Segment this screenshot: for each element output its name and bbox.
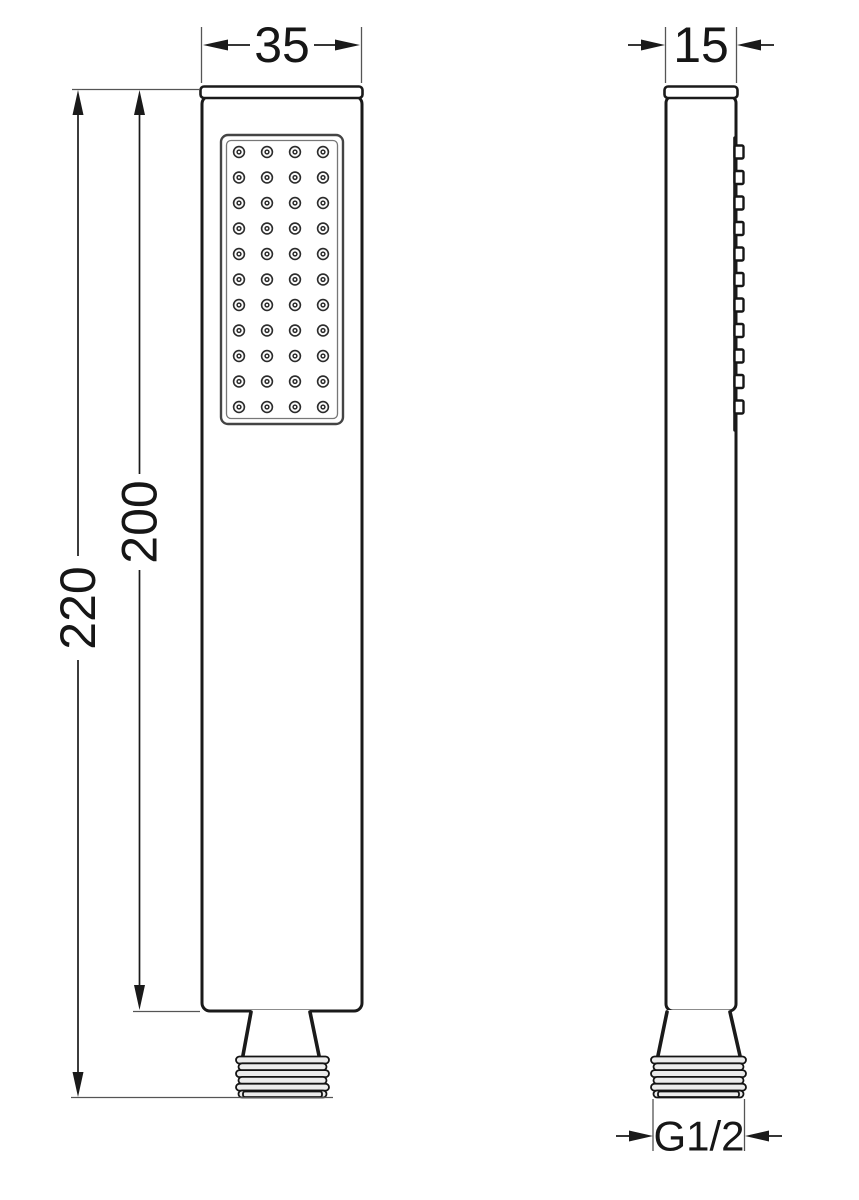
dim-body-height: 200	[112, 90, 168, 1010]
nozzle-hole-center	[321, 303, 325, 307]
nozzle-hole-center	[321, 252, 325, 256]
nozzle-hole-center	[293, 150, 297, 154]
nozzle-hole-center	[293, 278, 297, 282]
front-view	[201, 87, 363, 1098]
dim-label-side-width: 15	[673, 17, 729, 73]
dim-thread: G1/2	[616, 1099, 782, 1160]
side-neck-fill	[657, 1010, 741, 1058]
nozzle-hole-center	[321, 405, 325, 409]
nozzle-bump	[735, 273, 744, 286]
nozzle-hole-center	[293, 303, 297, 307]
side-threads	[651, 1057, 746, 1098]
side-body	[666, 96, 736, 1011]
nozzle-hole-center	[237, 380, 241, 384]
nozzle-hole-center	[265, 278, 269, 282]
nozzle-bump	[735, 324, 744, 337]
nozzle-hole-center	[293, 252, 297, 256]
nozzle-hole-center	[293, 329, 297, 333]
thread-base	[243, 1092, 322, 1098]
dim-side-width: 15	[628, 17, 774, 83]
arrowhead-top	[73, 90, 84, 115]
nozzle-bump	[735, 401, 744, 414]
handshower-dimension-diagram: 35 15 220 200 G1/2	[0, 0, 859, 1200]
nozzle-hole-center	[293, 380, 297, 384]
nozzle-hole-center	[265, 176, 269, 180]
front-neck-fill	[242, 1010, 320, 1058]
nozzle-hole-center	[265, 380, 269, 384]
nozzle-hole-center	[237, 227, 241, 231]
dim-label-thread: G1/2	[653, 1113, 744, 1160]
nozzle-hole-center	[293, 227, 297, 231]
nozzle-hole-center	[237, 329, 241, 333]
front-threads	[236, 1057, 329, 1098]
technical-drawing-canvas: 35 15 220 200 G1/2	[0, 0, 859, 1200]
nozzle-hole-center	[321, 227, 325, 231]
nozzle-hole-center	[321, 201, 325, 205]
nozzle-hole-center	[265, 303, 269, 307]
nozzle-bump	[735, 375, 744, 388]
nozzle-hole-center	[321, 354, 325, 358]
arrowhead-left	[203, 40, 228, 51]
nozzle-bump	[735, 248, 744, 261]
nozzle-hole-center	[237, 176, 241, 180]
arrowhead-bottom	[134, 985, 145, 1010]
nozzle-bump	[735, 171, 744, 184]
front-top-cap	[201, 87, 363, 99]
nozzle-hole-center	[237, 252, 241, 256]
dim-label-body-height: 200	[112, 480, 168, 563]
nozzle-hole-center	[237, 201, 241, 205]
nozzle-bump	[735, 350, 744, 363]
nozzle-hole-center	[237, 354, 241, 358]
dim-front-width: 35	[202, 17, 362, 83]
nozzle-hole-center	[321, 329, 325, 333]
nozzle-hole-center	[237, 278, 241, 282]
nozzle-hole-center	[321, 176, 325, 180]
dim-label-front-width: 35	[254, 17, 310, 73]
arrowhead-left	[641, 40, 665, 51]
nozzle-hole-center	[293, 405, 297, 409]
side-neck	[657, 1010, 741, 1058]
nozzle-hole-center	[321, 380, 325, 384]
front-neck	[242, 1010, 320, 1058]
side-view	[651, 87, 746, 1098]
dim-label-total-height: 220	[50, 566, 106, 649]
nozzle-hole-center	[321, 278, 325, 282]
nozzle-hole-center	[237, 405, 241, 409]
nozzle-hole-center	[265, 227, 269, 231]
arrowhead-right	[737, 40, 761, 51]
nozzle-bump	[735, 146, 744, 159]
arrowhead-right	[335, 40, 360, 51]
nozzle-hole-center	[293, 176, 297, 180]
nozzle-hole-center	[293, 354, 297, 358]
nozzle-hole-center	[265, 354, 269, 358]
nozzle-bump	[735, 197, 744, 210]
arrowhead-right	[745, 1131, 769, 1142]
nozzle-hole-center	[293, 201, 297, 205]
spray-plate	[221, 135, 343, 424]
nozzle-bump	[735, 222, 744, 235]
nozzle-hole-center	[265, 252, 269, 256]
arrowhead-bottom	[73, 1072, 84, 1097]
thread-base	[658, 1092, 739, 1098]
nozzle-hole-center	[237, 150, 241, 154]
arrowhead-left	[629, 1131, 653, 1142]
nozzle-hole-center	[265, 150, 269, 154]
nozzle-hole-center	[321, 150, 325, 154]
nozzle-hole-center	[265, 201, 269, 205]
nozzle-bump	[735, 299, 744, 312]
arrowhead-top	[134, 90, 145, 115]
side-top-cap	[665, 87, 738, 99]
dim-total-height: 220	[50, 90, 106, 1097]
nozzle-hole-center	[265, 329, 269, 333]
nozzle-hole-center	[265, 405, 269, 409]
nozzle-hole-center	[237, 303, 241, 307]
